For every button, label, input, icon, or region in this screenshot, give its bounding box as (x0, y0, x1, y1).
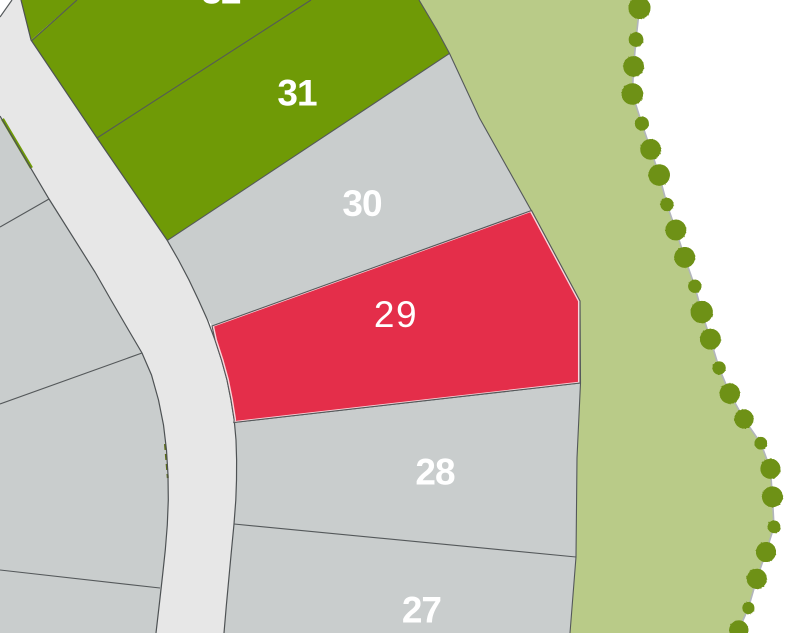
svg-text:28: 28 (415, 451, 455, 492)
svg-text:27: 27 (402, 590, 441, 631)
svg-text:31: 31 (277, 72, 317, 113)
svg-text:29: 29 (374, 294, 418, 335)
svg-text:32: 32 (201, 0, 241, 12)
svg-text:30: 30 (342, 183, 382, 224)
